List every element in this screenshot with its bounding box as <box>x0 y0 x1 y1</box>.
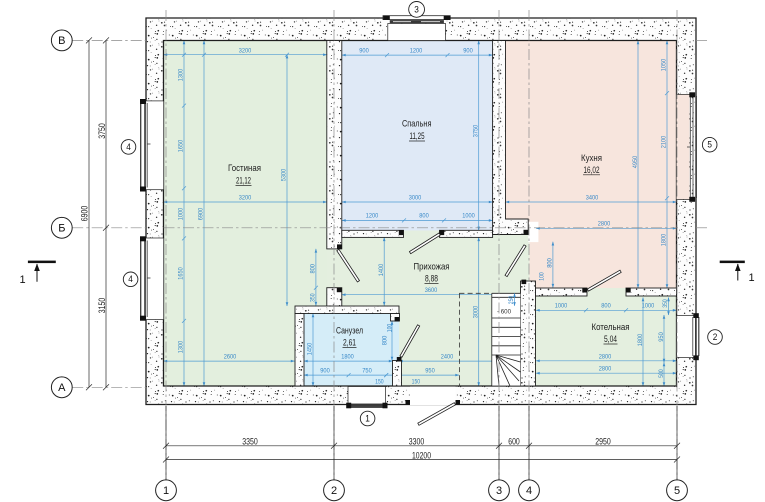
svg-text:1000: 1000 <box>462 213 475 220</box>
svg-text:4950: 4950 <box>632 155 639 168</box>
svg-text:1300: 1300 <box>178 340 185 353</box>
svg-text:750: 750 <box>362 368 372 375</box>
svg-text:5,04: 5,04 <box>604 333 617 344</box>
svg-text:600: 600 <box>508 437 520 447</box>
svg-text:6900: 6900 <box>198 207 205 220</box>
svg-text:1050: 1050 <box>661 58 668 71</box>
svg-text:1450: 1450 <box>307 342 314 355</box>
svg-text:2800: 2800 <box>598 221 611 228</box>
svg-text:6900: 6900 <box>80 206 90 222</box>
svg-text:3: 3 <box>414 5 419 15</box>
svg-text:3350: 3350 <box>242 437 258 447</box>
svg-text:1000: 1000 <box>642 303 655 310</box>
svg-text:3750: 3750 <box>97 123 107 139</box>
svg-text:1650: 1650 <box>178 267 185 280</box>
svg-text:950: 950 <box>425 368 435 375</box>
svg-text:800: 800 <box>601 303 611 310</box>
svg-text:4: 4 <box>526 485 532 497</box>
svg-text:2: 2 <box>713 332 718 342</box>
svg-text:2400: 2400 <box>441 354 454 361</box>
svg-text:5: 5 <box>707 140 712 150</box>
svg-text:Котельная: Котельная <box>592 322 630 333</box>
svg-text:1800: 1800 <box>341 354 354 361</box>
svg-text:В: В <box>58 35 65 47</box>
svg-text:1400: 1400 <box>378 263 385 276</box>
svg-text:16,02: 16,02 <box>584 164 600 175</box>
svg-text:1800: 1800 <box>637 333 644 346</box>
svg-text:2600: 2600 <box>224 354 237 361</box>
svg-text:2800: 2800 <box>599 353 612 360</box>
svg-text:3200: 3200 <box>239 48 252 55</box>
svg-text:350: 350 <box>310 293 317 302</box>
svg-text:2: 2 <box>331 485 337 497</box>
svg-text:1800: 1800 <box>661 233 668 246</box>
svg-text:800: 800 <box>547 258 554 268</box>
svg-text:4: 4 <box>126 142 131 152</box>
svg-text:2100: 2100 <box>661 135 668 148</box>
svg-text:11,25: 11,25 <box>410 130 425 141</box>
svg-text:3: 3 <box>496 485 502 497</box>
svg-text:3600: 3600 <box>425 287 438 294</box>
svg-text:350: 350 <box>662 299 669 308</box>
svg-text:3300: 3300 <box>409 437 425 447</box>
svg-text:1: 1 <box>365 413 370 423</box>
svg-text:3000: 3000 <box>472 305 479 318</box>
svg-text:3150: 3150 <box>97 298 107 314</box>
svg-text:800: 800 <box>310 264 317 274</box>
svg-text:Спальня: Спальня <box>402 119 432 130</box>
svg-text:100: 100 <box>387 323 394 332</box>
svg-text:150: 150 <box>412 378 421 385</box>
svg-text:1650: 1650 <box>178 139 185 152</box>
svg-text:Гостиная: Гостиная <box>228 163 261 174</box>
svg-text:1200: 1200 <box>366 213 379 220</box>
svg-text:1200: 1200 <box>410 48 423 55</box>
svg-text:900: 900 <box>359 48 369 55</box>
svg-text:800: 800 <box>382 335 389 345</box>
svg-text:1: 1 <box>748 272 754 284</box>
svg-text:8,88: 8,88 <box>425 273 438 284</box>
svg-text:21,12: 21,12 <box>236 175 251 186</box>
svg-text:2800: 2800 <box>599 366 612 373</box>
svg-text:5: 5 <box>674 485 680 497</box>
svg-text:10200: 10200 <box>412 450 431 460</box>
svg-text:1: 1 <box>19 274 25 286</box>
svg-text:1000: 1000 <box>555 303 568 310</box>
svg-text:150: 150 <box>375 378 384 385</box>
svg-text:250: 250 <box>508 295 515 304</box>
svg-text:1: 1 <box>163 485 169 497</box>
svg-text:1300: 1300 <box>178 68 185 81</box>
svg-text:1000: 1000 <box>178 207 185 220</box>
svg-text:3750: 3750 <box>472 124 479 137</box>
svg-text:900: 900 <box>463 48 473 55</box>
svg-text:950: 950 <box>658 332 665 342</box>
svg-text:Б: Б <box>58 222 65 234</box>
svg-text:4: 4 <box>128 274 133 284</box>
svg-text:Прихожая: Прихожая <box>414 262 450 273</box>
svg-text:Кухня: Кухня <box>581 153 602 164</box>
svg-text:3000: 3000 <box>409 195 422 202</box>
svg-text:100: 100 <box>539 272 546 281</box>
svg-text:900: 900 <box>320 368 330 375</box>
svg-text:3200: 3200 <box>239 195 252 202</box>
svg-text:500: 500 <box>658 369 665 378</box>
svg-text:5300: 5300 <box>281 168 288 181</box>
svg-text:А: А <box>58 382 66 394</box>
svg-text:800: 800 <box>419 213 429 220</box>
svg-text:2950: 2950 <box>595 437 611 447</box>
svg-text:2,61: 2,61 <box>343 337 356 348</box>
svg-text:Санузел: Санузел <box>336 326 363 337</box>
svg-text:3400: 3400 <box>586 195 599 202</box>
